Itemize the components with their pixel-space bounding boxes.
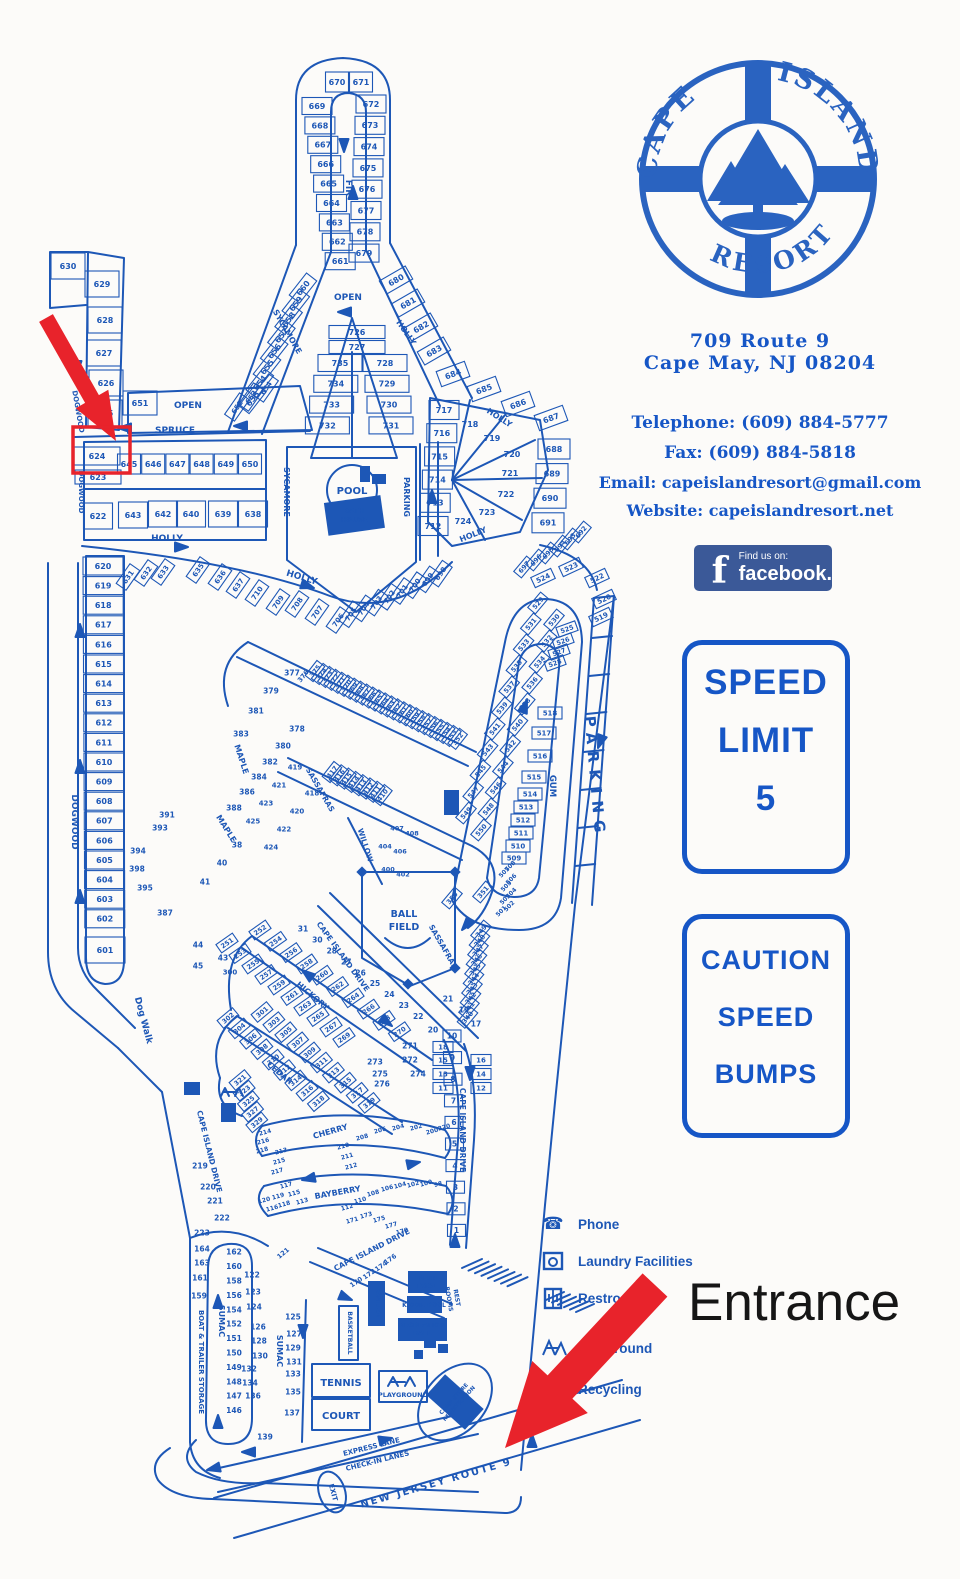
lot-number: 380 xyxy=(275,742,291,751)
lot-number: 202 xyxy=(409,1123,423,1133)
street-label: CAPE ISLAND DRIVE xyxy=(458,1088,467,1172)
lot-number: 512 xyxy=(516,817,531,825)
direction-arrow-icon xyxy=(214,1415,223,1428)
lot-728: 728 xyxy=(363,355,407,372)
lot-516: 516 xyxy=(528,750,552,762)
lot-number: 128 xyxy=(251,1337,267,1346)
lot-124: 124 xyxy=(246,1303,262,1312)
lot-113: 113 xyxy=(295,1197,309,1207)
lot-number: 679 xyxy=(356,249,373,258)
lot-number: 650 xyxy=(242,460,259,469)
lot-number: 647 xyxy=(169,460,186,469)
lot-394: 394 xyxy=(130,847,146,856)
lot-number: 422 xyxy=(277,826,292,834)
lot-274: 274 xyxy=(410,1070,426,1079)
lot-number: 18 xyxy=(438,1044,448,1052)
lot-number: 408 xyxy=(405,829,419,837)
lot-648: 648 xyxy=(190,454,213,474)
lot-378: 378 xyxy=(289,725,305,734)
lot-number: 398 xyxy=(129,865,145,874)
lot-115: 115 xyxy=(287,1189,301,1199)
lot-732: 732 xyxy=(305,417,349,434)
svg-text:☎: ☎ xyxy=(542,1214,563,1234)
lot-number: 98 xyxy=(433,1180,443,1189)
lot-691: 691 xyxy=(532,513,564,533)
lot-number: 514 xyxy=(523,791,538,799)
lot-number: 540 xyxy=(510,717,525,733)
lot-710: 710 xyxy=(245,580,269,607)
lot-number: 690 xyxy=(542,494,559,503)
email-line: Email: capeislandresort@gmail.com xyxy=(585,473,935,492)
lot-212: 212 xyxy=(344,1162,358,1172)
lot-number: 630 xyxy=(60,262,77,271)
lot-number: 719 xyxy=(484,434,501,443)
lot-656: 656 xyxy=(260,336,287,366)
lot-numbers: 6706716696686676666656646636626616726736… xyxy=(51,72,616,1442)
lot-673: 673 xyxy=(355,116,385,134)
lot-149: 149 xyxy=(226,1363,242,1372)
lot-713: 713 xyxy=(420,493,450,512)
lot-number: 206 xyxy=(373,1126,387,1136)
lot-number: 121 xyxy=(275,1246,291,1261)
lot-number: 223 xyxy=(194,1229,210,1238)
lot-383: 383 xyxy=(233,730,249,739)
lot-number: 646 xyxy=(145,460,162,469)
street-label: OPEN xyxy=(174,401,202,411)
lot-514: 514 xyxy=(518,788,542,800)
resort-logo: CAPE ISLAND RESORT xyxy=(633,48,883,310)
lot-number: 518 xyxy=(543,710,558,718)
lot-533: 533 xyxy=(513,634,534,656)
street-label: SPRUCE xyxy=(155,426,195,436)
lot-number: 382 xyxy=(262,758,278,767)
lot-number: 149 xyxy=(226,1363,242,1372)
lot-150: 150 xyxy=(226,1349,242,1358)
lot-number: 603 xyxy=(96,895,113,904)
lot-number: 663 xyxy=(326,218,343,227)
lot-671: 671 xyxy=(350,72,373,92)
lot-162: 162 xyxy=(226,1248,242,1257)
lot-number: 127 xyxy=(286,1330,302,1339)
lot-number: 674 xyxy=(361,142,378,151)
lot-221: 221 xyxy=(207,1197,223,1206)
lot-260: 260 xyxy=(311,965,333,985)
lot-number: 137 xyxy=(284,1409,300,1418)
lot-number: 636 xyxy=(213,569,228,586)
lot-350: 350 xyxy=(442,887,463,909)
street-label: BOAT & TRAILER STORAGE xyxy=(197,1310,205,1414)
lot-687: 687 xyxy=(534,405,568,430)
lot-number: 8 xyxy=(450,1075,455,1084)
lot-637: 637 xyxy=(226,572,250,599)
lot-698: 698 xyxy=(429,560,453,587)
lot-number: 41 xyxy=(200,878,210,887)
lot-300: 300 xyxy=(223,969,238,977)
direction-arrow-icon xyxy=(301,1173,316,1185)
lot-number: 604 xyxy=(96,875,113,884)
lot-518: 518 xyxy=(538,707,562,719)
lot-number: 684 xyxy=(444,367,463,381)
lot-number: 315 xyxy=(338,1075,354,1090)
lot-number: 108 xyxy=(366,1189,380,1199)
lot-22: 22 xyxy=(413,1012,423,1021)
direction-arrow-icon xyxy=(340,139,349,152)
lot-158: 158 xyxy=(226,1277,242,1286)
lot-number: 622 xyxy=(90,512,107,521)
lot-number: 152 xyxy=(226,1320,242,1329)
lot-number: 524 xyxy=(535,572,552,585)
lot-269: 269 xyxy=(333,1028,355,1048)
speed-limit-sign: SPEED LIMIT 5 xyxy=(682,640,850,874)
legend-item-phone: ☎Phone xyxy=(542,1214,619,1234)
lot-627: 627 xyxy=(87,340,121,366)
lot-724: 724 xyxy=(455,517,472,526)
lot-211: 211 xyxy=(340,1152,354,1162)
lot-222: 222 xyxy=(214,1214,230,1223)
lot-630: 630 xyxy=(51,253,85,279)
lot-number: 272 xyxy=(402,1056,418,1065)
lot-603: 603 xyxy=(85,890,125,908)
lot-number: 724 xyxy=(455,517,472,526)
street-label: FIR xyxy=(343,180,353,196)
lot-125: 125 xyxy=(285,1313,301,1322)
lot-number: 541 xyxy=(488,721,503,737)
street-label: CEDAR xyxy=(265,1060,294,1086)
lot-395: 395 xyxy=(137,884,153,893)
facebook-find-us: Find us on: xyxy=(739,552,788,562)
lot-number: 605 xyxy=(96,856,113,865)
lot-147: 147 xyxy=(226,1392,242,1401)
direction-arrow-icon xyxy=(338,1291,353,1304)
lot-number: 544 xyxy=(496,759,511,775)
lot-524: 524 xyxy=(531,568,556,587)
svg-text:ISLAND: ISLAND xyxy=(775,56,883,177)
lot-number: 317 xyxy=(350,1086,366,1101)
lot-number: 732 xyxy=(319,421,336,430)
lot-number: 17 xyxy=(471,1020,481,1029)
lot-131: 131 xyxy=(286,1358,302,1367)
lot-537: 537 xyxy=(499,676,520,698)
lot-number: 273 xyxy=(367,1058,383,1067)
lot-number: 638 xyxy=(245,510,262,519)
lot-528: 528 xyxy=(544,655,566,671)
street-label: NEW JERSEY ROUTE 9 xyxy=(359,1457,513,1511)
lot-119: 119 xyxy=(271,1192,285,1202)
lot-171: 171 xyxy=(345,1216,359,1226)
lot-129: 129 xyxy=(285,1344,301,1353)
lot-number: 213 xyxy=(274,1147,288,1157)
facebook-badge[interactable]: f Find us on: facebook. xyxy=(694,545,832,591)
lot-number: 528 xyxy=(547,657,563,669)
lot-722: 722 xyxy=(498,490,515,499)
lot-156: 156 xyxy=(226,1291,242,1300)
lot-number: 611 xyxy=(96,738,113,747)
legend-item-laundry-facilities: Laundry Facilities xyxy=(544,1253,693,1269)
lot-159: 159 xyxy=(191,1292,207,1301)
lot-number: 14 xyxy=(476,1071,486,1079)
lot-number: 303 xyxy=(266,1015,282,1030)
lot-19: 19 xyxy=(459,1006,469,1015)
street-label: HOLLY xyxy=(151,534,183,544)
lot-number: 534 xyxy=(532,654,547,670)
lot-number: 601 xyxy=(97,946,114,955)
lot-398: 398 xyxy=(129,865,145,874)
lot-number: 669 xyxy=(309,102,326,111)
lot-384: 384 xyxy=(251,773,267,782)
lot-number: 381 xyxy=(248,707,264,716)
lot-423: 423 xyxy=(259,800,274,808)
lot-44: 44 xyxy=(193,941,203,950)
lot-388: 388 xyxy=(226,804,242,813)
lot-515: 515 xyxy=(522,771,546,783)
lot-number: 707 xyxy=(310,604,325,621)
lot-number: 162 xyxy=(226,1248,242,1257)
lot-number: 313 xyxy=(326,1065,342,1080)
lot-number: 513 xyxy=(519,804,534,812)
lot-number: 543 xyxy=(480,742,495,758)
lot-386: 386 xyxy=(239,788,255,797)
lot-number: 30 xyxy=(312,936,322,945)
lot-379: 379 xyxy=(263,687,279,696)
lot-number: 421 xyxy=(272,782,287,790)
lot-272: 272 xyxy=(402,1056,418,1065)
lot-number: 548 xyxy=(481,801,496,817)
lot-609: 609 xyxy=(84,773,124,791)
building-shape xyxy=(414,1350,423,1359)
lot-number: 661 xyxy=(332,257,349,266)
lot-number: 147 xyxy=(226,1392,242,1401)
lot-614: 614 xyxy=(84,675,124,693)
street-label: MAPLE xyxy=(214,813,238,844)
lot-number: 675 xyxy=(360,164,377,173)
lot-number: 619 xyxy=(95,581,112,590)
lot-number: 2 xyxy=(453,1205,458,1214)
lot-number: 379 xyxy=(263,687,279,696)
lot-number: 307 xyxy=(290,1035,306,1050)
lot-number: 717 xyxy=(436,406,453,415)
lot-number: 118 xyxy=(277,1200,291,1210)
lot-number: 729 xyxy=(379,380,396,389)
lot-666: 666 xyxy=(311,156,341,173)
lot-252: 252 xyxy=(249,920,271,940)
lot-536: 536 xyxy=(522,672,543,694)
lot-601: 601 xyxy=(85,937,125,963)
lot-number: 726 xyxy=(349,328,366,337)
facility-label: POOL xyxy=(337,486,368,497)
lot-number: 635 xyxy=(191,562,206,579)
logo-tree-icon xyxy=(707,129,810,205)
lot-41: 41 xyxy=(200,878,210,887)
lot-24: 24 xyxy=(384,990,394,999)
lot-number: 161 xyxy=(192,1274,208,1283)
speed-sign-line: LIMIT xyxy=(687,721,845,761)
direction-arrow-icon xyxy=(76,890,85,903)
building-shape xyxy=(424,1337,436,1348)
lot-381: 381 xyxy=(248,707,264,716)
lot-number: 126 xyxy=(250,1323,266,1332)
lot-number: 637 xyxy=(231,577,246,594)
facility-label: COURT xyxy=(322,1411,360,1422)
lot-393: 393 xyxy=(152,824,168,833)
lot-number: 129 xyxy=(285,1344,301,1353)
lot-420: 420 xyxy=(290,808,305,816)
lot-number: 643 xyxy=(125,511,142,520)
lot-number: 6 xyxy=(451,1118,456,1127)
lot-number: 511 xyxy=(514,830,529,838)
lot-number: 164 xyxy=(194,1245,210,1254)
lot-number: 135 xyxy=(285,1388,301,1397)
street-label: CAPE ISLAND DRIVE xyxy=(332,1227,411,1273)
lot-number: 163 xyxy=(194,1259,210,1268)
lot-number: 222 xyxy=(214,1214,230,1223)
lot-380: 380 xyxy=(275,742,291,751)
lot-number: 721 xyxy=(502,469,519,478)
lot-730: 730 xyxy=(367,396,411,413)
lot-251: 251 xyxy=(216,933,238,953)
lot-number: 670 xyxy=(329,78,346,87)
lot-number: 12 xyxy=(476,1085,486,1093)
lot-number: 608 xyxy=(96,797,113,806)
lot-523: 523 xyxy=(559,557,584,576)
lot-number: 318 xyxy=(311,1094,327,1109)
lot-726: 726 xyxy=(329,326,385,339)
lot-733: 733 xyxy=(310,396,354,413)
legend-label: Recycling xyxy=(578,1382,642,1397)
lot-number: 395 xyxy=(137,884,153,893)
lot-721: 721 xyxy=(502,469,519,478)
lot-number: 309 xyxy=(302,1045,318,1060)
lot-number: 538 xyxy=(518,696,533,712)
street-label: PARKING xyxy=(402,477,411,517)
lot-217: 217 xyxy=(270,1167,284,1177)
street-label: WILLOW xyxy=(356,827,376,864)
lot-number: 609 xyxy=(96,777,113,786)
lot-255: 255 xyxy=(242,954,264,974)
lot-number: 7 xyxy=(451,1097,456,1106)
lot-number: 550 xyxy=(474,822,489,838)
lot-619: 619 xyxy=(83,577,123,595)
lot-531: 531 xyxy=(521,613,542,635)
street-label: GUM xyxy=(547,775,557,797)
lot-642: 642 xyxy=(149,501,178,527)
lot-419: 419 xyxy=(288,764,303,772)
lot-135: 135 xyxy=(285,1388,301,1397)
lot-665: 665 xyxy=(314,175,344,192)
lot-118: 118 xyxy=(277,1200,291,1210)
facebook-icon: f xyxy=(702,553,737,589)
lot-622: 622 xyxy=(84,503,113,529)
lot-408: 408 xyxy=(405,829,419,837)
lot-number: 1 xyxy=(454,1226,459,1235)
lot-681: 681 xyxy=(391,289,424,317)
lot-133: 133 xyxy=(285,1370,301,1379)
lot-number: 624 xyxy=(89,452,106,461)
lot-number: 220 xyxy=(437,1123,451,1133)
lot-262: 262 xyxy=(326,977,348,997)
lot-number: 642 xyxy=(155,510,172,519)
lot-number: 404 xyxy=(378,842,392,850)
lot-number: 612 xyxy=(95,719,112,728)
lot-606: 606 xyxy=(84,831,124,849)
lot-254: 254 xyxy=(264,931,286,951)
lot-number: 159 xyxy=(191,1292,207,1301)
lot-number: 673 xyxy=(362,121,379,130)
lot-number: 723 xyxy=(479,508,496,517)
lot-number: 301 xyxy=(254,1005,270,1020)
lot-400: 400 xyxy=(381,865,395,873)
lot-number: 626 xyxy=(98,379,115,388)
lot-number: 420 xyxy=(290,808,305,816)
lot-number: 519 xyxy=(593,611,610,624)
lot-number: 536 xyxy=(525,675,540,691)
lot-number: 720 xyxy=(504,450,521,459)
lot-number: 388 xyxy=(226,804,242,813)
lot-257: 257 xyxy=(255,965,277,985)
lot-number: 419 xyxy=(288,764,303,772)
lot-275: 275 xyxy=(372,1070,388,1079)
lot-number: 735 xyxy=(332,359,349,368)
lot-718: 718 xyxy=(462,420,479,429)
lot-number: 274 xyxy=(410,1070,426,1079)
lot-number: 676 xyxy=(359,185,376,194)
lot-number: 16 xyxy=(476,1057,486,1065)
lot-30: 30 xyxy=(312,936,322,945)
lot-215: 215 xyxy=(272,1157,286,1167)
lot-220: 220 xyxy=(437,1123,451,1133)
lot-number: 102 xyxy=(406,1180,420,1190)
lot-number: 708 xyxy=(290,596,305,613)
lot-382: 382 xyxy=(262,758,278,767)
lot-618: 618 xyxy=(83,596,123,614)
facility-label: KIDDIE POOL xyxy=(402,1302,446,1309)
website-line: Website: capeislandresort.net xyxy=(600,501,920,520)
lot-659: 659 xyxy=(282,289,309,319)
lot-number: 219 xyxy=(192,1162,208,1171)
lot-424: 424 xyxy=(264,844,279,852)
lot-134: 134 xyxy=(242,1379,258,1388)
lot-number: 671 xyxy=(353,78,370,87)
speed-sign-line: SPEED xyxy=(687,663,845,703)
lot-633: 633 xyxy=(151,559,175,586)
telephone-line: Telephone: (609) 884-5777 xyxy=(600,413,920,433)
lot-404: 404 xyxy=(378,842,392,850)
lot-number: 620 xyxy=(95,562,112,571)
lot-136: 136 xyxy=(245,1392,261,1401)
lot-539: 539 xyxy=(492,697,513,719)
fax-line: Fax: (609) 884-5818 xyxy=(600,443,920,463)
street-label: DOGWOOD xyxy=(77,471,85,514)
lot-259: 259 xyxy=(268,975,290,995)
lot-670: 670 xyxy=(326,72,349,92)
lot-617: 617 xyxy=(83,616,123,634)
lot-number: 22 xyxy=(413,1012,423,1021)
legend-label: Laundry Facilities xyxy=(578,1254,693,1269)
facility-label: PAVILION xyxy=(374,1287,381,1318)
lot-number: 216 xyxy=(256,1137,270,1147)
lot-425: 425 xyxy=(246,818,261,826)
lot-604: 604 xyxy=(85,871,125,889)
building-shape xyxy=(438,1344,448,1353)
lot-213: 213 xyxy=(274,1147,288,1157)
lot-number: 132 xyxy=(241,1365,257,1374)
lot-number: 378 xyxy=(289,725,305,734)
lot-610: 610 xyxy=(84,753,124,771)
lot-number: 5 xyxy=(452,1140,457,1149)
lot-number: 386 xyxy=(239,788,255,797)
laundry-icon xyxy=(544,1253,562,1269)
lot-number: 131 xyxy=(286,1358,302,1367)
lot-number: 383 xyxy=(233,730,249,739)
